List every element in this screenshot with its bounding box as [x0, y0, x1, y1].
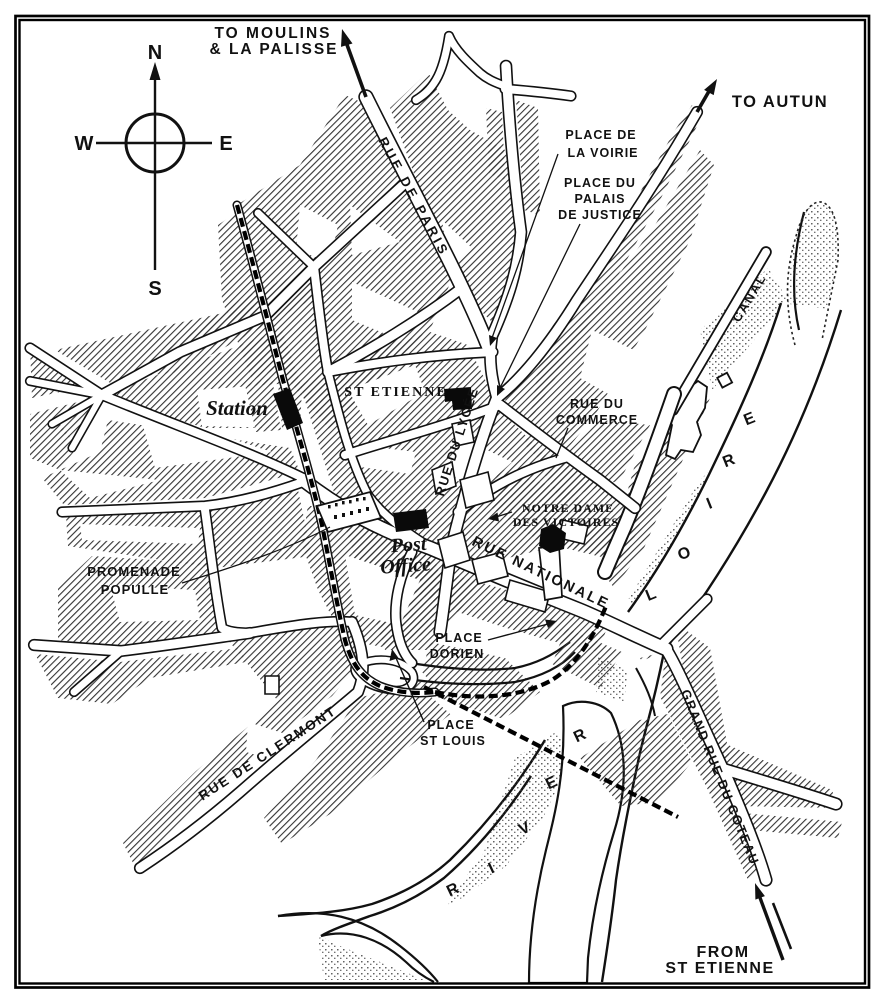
svg-text:ST LOUIS: ST LOUIS [420, 734, 486, 748]
svg-text:POPULLE: POPULLE [101, 582, 169, 597]
svg-text:COMMERCE: COMMERCE [556, 413, 638, 427]
svg-text:Station: Station [206, 396, 268, 420]
svg-text:LA VOIRIE: LA VOIRIE [567, 146, 638, 160]
svg-text:PROMENADE: PROMENADE [87, 564, 181, 579]
svg-text:S: S [148, 278, 161, 300]
svg-text:TO AUTUN: TO AUTUN [732, 93, 828, 111]
svg-text:DES VICTOIRES: DES VICTOIRES [513, 515, 619, 529]
svg-text:Office: Office [380, 553, 432, 578]
svg-text:FROM: FROM [696, 944, 749, 961]
svg-text:PALAIS: PALAIS [575, 192, 626, 206]
svg-text:DE JUSTICE: DE JUSTICE [558, 208, 642, 222]
svg-text:PLACE: PLACE [427, 718, 474, 732]
svg-text:ST ETIENNE: ST ETIENNE [344, 385, 447, 400]
svg-text:NOTRE DAME: NOTRE DAME [522, 501, 614, 515]
svg-text:ST ETIENNE: ST ETIENNE [665, 960, 774, 977]
svg-text:N: N [148, 42, 162, 64]
svg-text:W: W [75, 133, 94, 155]
svg-text:E: E [219, 133, 232, 155]
svg-text:PLACE DU: PLACE DU [564, 176, 636, 190]
svg-text:DORIEN: DORIEN [430, 647, 485, 661]
svg-text:& LA PALISSE: & LA PALISSE [209, 41, 338, 58]
svg-text:PLACE DE: PLACE DE [565, 128, 636, 142]
svg-text:RUE DU: RUE DU [570, 397, 624, 411]
svg-text:PLACE: PLACE [435, 631, 482, 645]
svg-text:TO MOULINS: TO MOULINS [214, 25, 331, 42]
